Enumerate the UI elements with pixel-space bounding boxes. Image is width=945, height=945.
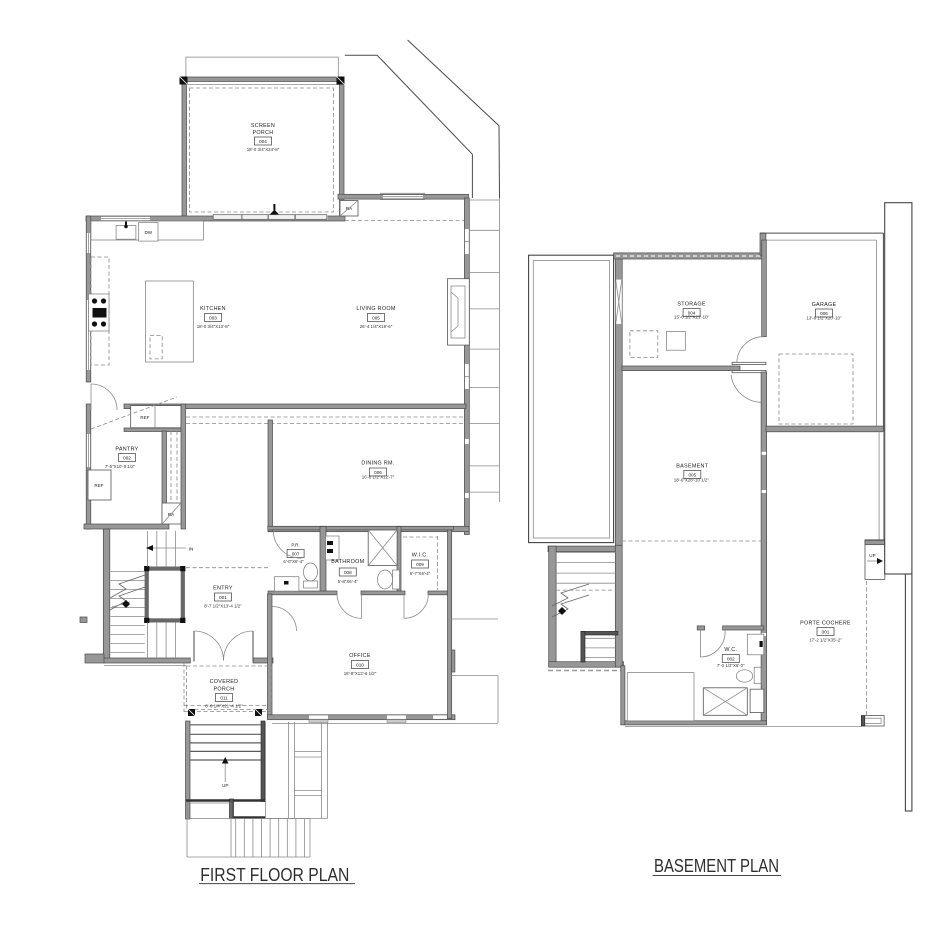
svg-text:001: 001	[822, 630, 830, 635]
svg-text:BASEMENT PLAN: BASEMENT PLAN	[654, 855, 779, 876]
svg-text:KITCHEN: KITCHEN	[200, 306, 226, 312]
svg-text:6'-7"X6'-4": 6'-7"X6'-4"	[410, 571, 431, 576]
svg-text:003: 003	[209, 316, 217, 321]
svg-text:18'-6"X28'-10 1/2": 18'-6"X28'-10 1/2"	[674, 478, 710, 483]
svg-text:FIRST FLOOR PLAN: FIRST FLOOR PLAN	[200, 864, 349, 885]
svg-text:RA: RA	[346, 206, 353, 211]
svg-text:18'-0 3/4"X13'-8": 18'-0 3/4"X13'-8"	[197, 324, 230, 329]
svg-text:18'-8"X12'-6 1/2": 18'-8"X12'-6 1/2"	[344, 671, 377, 676]
svg-text:BASEMENT: BASEMENT	[676, 464, 708, 470]
svg-text:W.I.C.: W.I.C.	[412, 552, 428, 558]
svg-text:RA: RA	[168, 512, 175, 517]
svg-text:BATHROOM: BATHROOM	[331, 559, 364, 565]
svg-text:002: 002	[123, 456, 131, 461]
svg-text:UP: UP	[222, 783, 228, 788]
svg-text:OFFICE: OFFICE	[349, 653, 371, 659]
svg-text:007: 007	[292, 552, 300, 557]
svg-text:REF: REF	[140, 415, 149, 420]
svg-text:002: 002	[727, 657, 735, 662]
svg-text:8'-7 1/2"X13'-4 1/2": 8'-7 1/2"X13'-4 1/2"	[204, 604, 242, 609]
svg-text:004: 004	[259, 139, 267, 144]
svg-text:DW: DW	[144, 230, 152, 235]
svg-text:16'-6 1/2"X12'-7": 16'-6 1/2"X12'-7"	[362, 475, 395, 480]
svg-text:7'-0 1/2"X6'-0": 7'-0 1/2"X6'-0"	[717, 663, 745, 668]
svg-text:PORTE COCHERE: PORTE COCHERE	[800, 621, 851, 627]
svg-text:8'-6 1/4"X21'-4 1/2": 8'-6 1/4"X21'-4 1/2"	[205, 704, 243, 709]
svg-text:UP: UP	[869, 553, 875, 558]
svg-text:LIVING ROOM: LIVING ROOM	[356, 306, 395, 312]
svg-text:PORCH: PORCH	[214, 687, 235, 693]
svg-text:009: 009	[416, 562, 424, 567]
svg-text:STORAGE: STORAGE	[677, 302, 705, 308]
svg-text:15'-6 1/2"X21'-10": 15'-6 1/2"X21'-10"	[674, 315, 710, 320]
svg-text:13'-6 1/2"X20'-10": 13'-6 1/2"X20'-10"	[806, 316, 842, 321]
svg-text:001: 001	[219, 595, 227, 600]
svg-text:26'-4 1/4"X19'-6": 26'-4 1/4"X19'-6"	[360, 324, 393, 329]
svg-text:COVERED: COVERED	[210, 679, 239, 685]
svg-text:005: 005	[372, 316, 380, 321]
svg-text:7'-6"X10'-0 1/2": 7'-6"X10'-0 1/2"	[105, 464, 136, 469]
svg-text:011: 011	[220, 696, 228, 701]
svg-text:DINING RM.: DINING RM.	[361, 461, 394, 467]
svg-text:REF: REF	[94, 483, 103, 488]
svg-text:IN: IN	[189, 547, 194, 552]
svg-text:P.R.: P.R.	[291, 543, 299, 548]
svg-text:18'-0 3/4"X24'-8": 18'-0 3/4"X24'-8"	[247, 147, 280, 152]
svg-text:008: 008	[344, 570, 352, 575]
svg-text:5'-8"X6'-4": 5'-8"X6'-4"	[338, 579, 359, 584]
svg-text:GARAGE: GARAGE	[812, 302, 837, 308]
svg-text:W.C.: W.C.	[724, 647, 737, 653]
svg-text:PANTRY: PANTRY	[115, 447, 138, 453]
svg-text:SCREEN: SCREEN	[251, 123, 275, 129]
svg-text:PORCH: PORCH	[253, 130, 274, 136]
svg-text:17'-2 1/2"X35'-2": 17'-2 1/2"X35'-2"	[809, 638, 842, 643]
svg-text:010: 010	[356, 663, 364, 668]
svg-text:6'-0"X6'-4": 6'-0"X6'-4"	[283, 559, 304, 564]
svg-text:ENTRY: ENTRY	[213, 586, 233, 592]
